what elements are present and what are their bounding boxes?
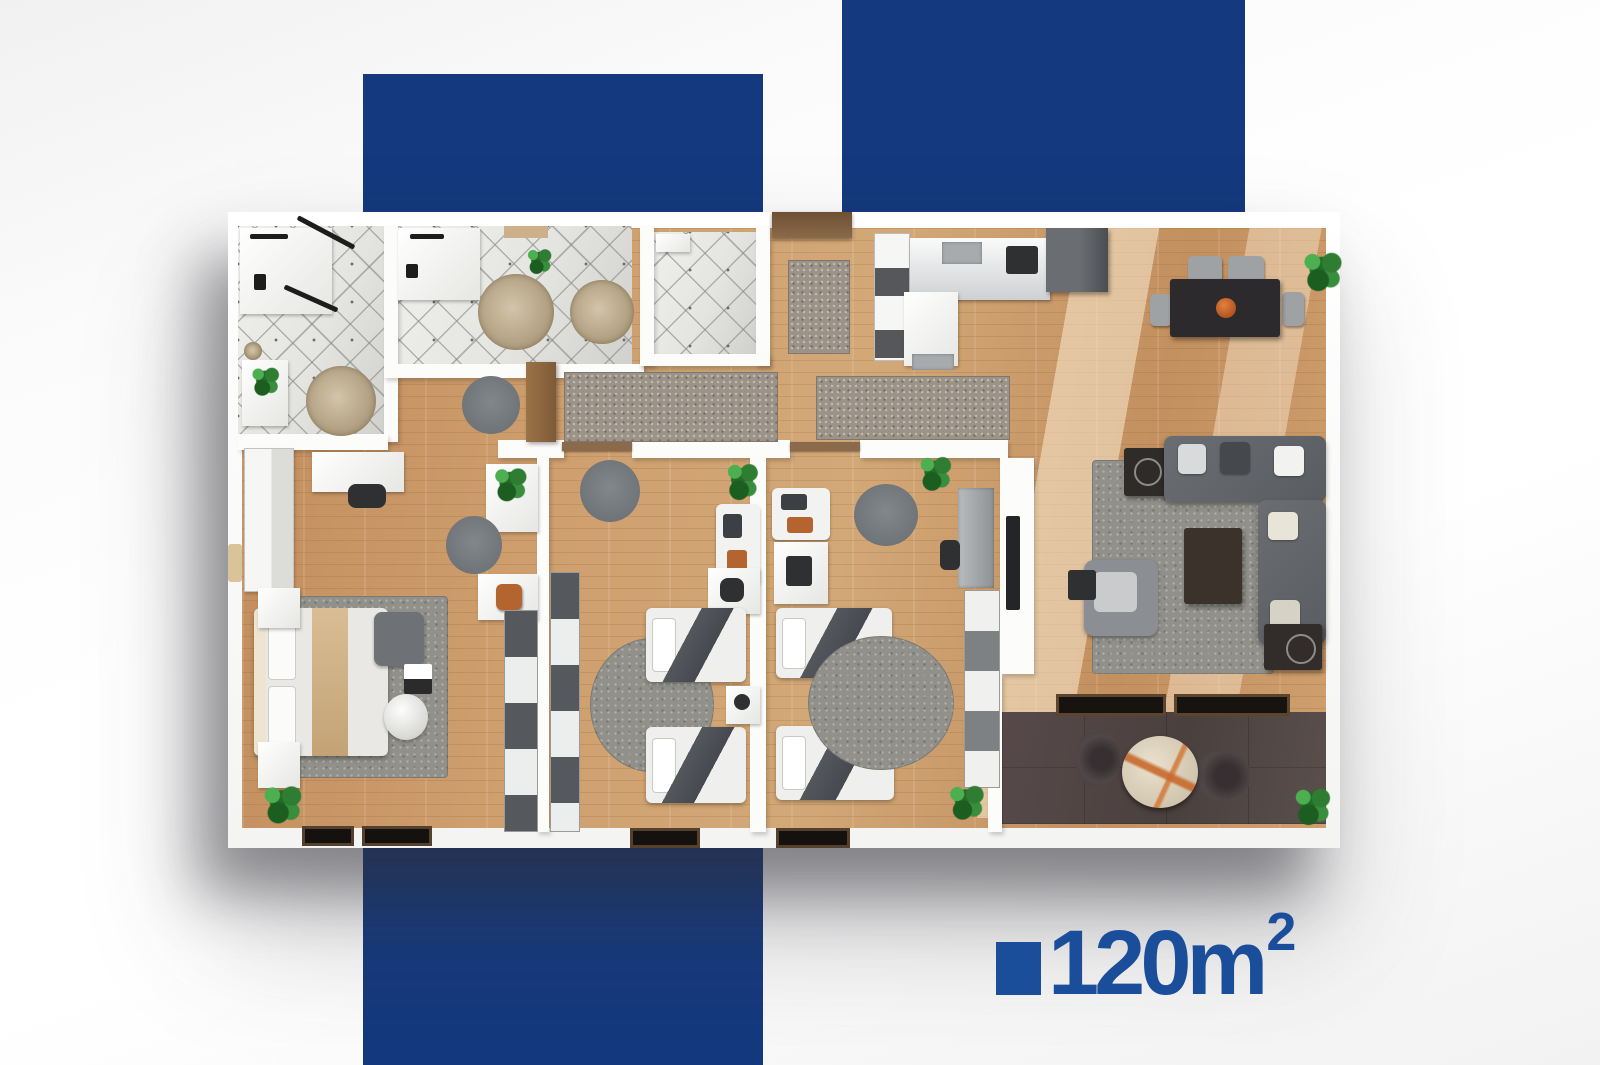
- bistro-table: [1122, 736, 1198, 808]
- bedroom-3-door: [790, 442, 860, 451]
- area-value: 120m: [1048, 926, 1263, 1001]
- balcony-chair: [1076, 732, 1120, 786]
- potted-plant: [258, 782, 306, 826]
- faucet: [250, 234, 288, 239]
- loveseat: [772, 488, 830, 540]
- potted-plant: [1290, 784, 1334, 828]
- wall: [756, 226, 770, 366]
- tv-screen: [1006, 516, 1020, 610]
- bedroom-3-wardrobe: [964, 590, 1000, 788]
- wall: [384, 226, 398, 442]
- desk-chair: [348, 484, 386, 508]
- sofa-pillow: [1178, 444, 1206, 474]
- pillow-gray: [374, 612, 424, 666]
- peninsula-end: [912, 354, 954, 370]
- entry-runner-rug: [788, 260, 850, 354]
- planter-box: [1174, 694, 1290, 716]
- area-exponent: 2: [1266, 901, 1294, 963]
- planter-box: [1056, 694, 1166, 716]
- dining-chair: [1150, 294, 1172, 326]
- single-bed: [646, 608, 746, 682]
- radiator: [302, 826, 354, 846]
- media-dish: [1286, 634, 1316, 664]
- poster: 120m 2: [0, 0, 1600, 1065]
- towel-radiator: [228, 544, 242, 582]
- desk: [958, 488, 994, 588]
- wc-fixture: [656, 234, 690, 252]
- round-rug: [580, 460, 640, 522]
- hall-runner-rug: [816, 376, 1010, 440]
- desk-chair: [496, 584, 522, 610]
- bathroom-2-door: [504, 226, 548, 238]
- bed-throw: [312, 608, 348, 756]
- round-rug: [462, 376, 520, 434]
- magazine: [404, 664, 432, 694]
- ottoman-small: [1068, 570, 1096, 600]
- laundry-basket: [244, 342, 262, 360]
- bedroom-rug: [808, 636, 954, 770]
- hall-runner-rug: [564, 372, 778, 442]
- round-rug: [446, 516, 502, 574]
- cooktop: [1006, 246, 1038, 274]
- potted-plant: [724, 458, 760, 504]
- side-table-tray: [1134, 458, 1162, 486]
- master-wardrobe: [244, 448, 294, 592]
- jute-rug: [478, 274, 554, 350]
- hall-sideboard: [526, 362, 556, 442]
- sofa-pillow: [1274, 446, 1304, 476]
- kitchen-sink: [942, 242, 982, 264]
- books: [786, 556, 812, 586]
- ottoman: [384, 694, 428, 740]
- pillow: [268, 686, 296, 746]
- area-square-icon: [996, 942, 1041, 995]
- radiator: [630, 828, 700, 848]
- sofa-pillow: [1268, 512, 1298, 540]
- corridor-wardrobe: [504, 610, 538, 832]
- balcony-chair: [1194, 752, 1250, 800]
- single-bed: [646, 727, 746, 803]
- radiator: [362, 826, 432, 846]
- jute-rug: [306, 366, 376, 436]
- wall: [537, 458, 549, 832]
- desk-chair: [720, 578, 744, 602]
- area-badge: 120m 2: [996, 926, 1294, 1001]
- potted-plant: [1298, 248, 1346, 294]
- bedroom-2-wardrobe: [550, 572, 580, 832]
- potted-plant: [524, 246, 554, 276]
- toilet-fixture: [254, 274, 266, 290]
- wall: [640, 226, 654, 366]
- wall: [640, 354, 770, 366]
- potted-plant: [916, 452, 954, 494]
- radiator: [776, 828, 850, 848]
- fruit-bowl: [1216, 298, 1236, 318]
- master-bed: [254, 608, 388, 756]
- faucet: [410, 234, 444, 239]
- dining-chair: [1282, 292, 1304, 326]
- toilet-fixture: [406, 264, 418, 278]
- bedside-lamp: [734, 694, 750, 710]
- wall: [632, 440, 790, 458]
- potted-plant: [490, 464, 530, 504]
- fridge-cabinet: [1046, 228, 1108, 292]
- nightstand: [258, 588, 300, 628]
- bedroom-2-door: [562, 442, 632, 451]
- coffee-table: [1184, 528, 1242, 604]
- potted-plant: [944, 782, 988, 822]
- headboard: [254, 612, 266, 752]
- desk-chair: [940, 540, 960, 570]
- entry-door: [772, 212, 852, 238]
- potted-plant: [248, 364, 282, 398]
- round-rug: [854, 484, 918, 546]
- jute-rug: [570, 280, 634, 344]
- floor-plan: [228, 212, 1340, 848]
- sofa-pillow: [1220, 442, 1250, 474]
- wall: [498, 440, 564, 458]
